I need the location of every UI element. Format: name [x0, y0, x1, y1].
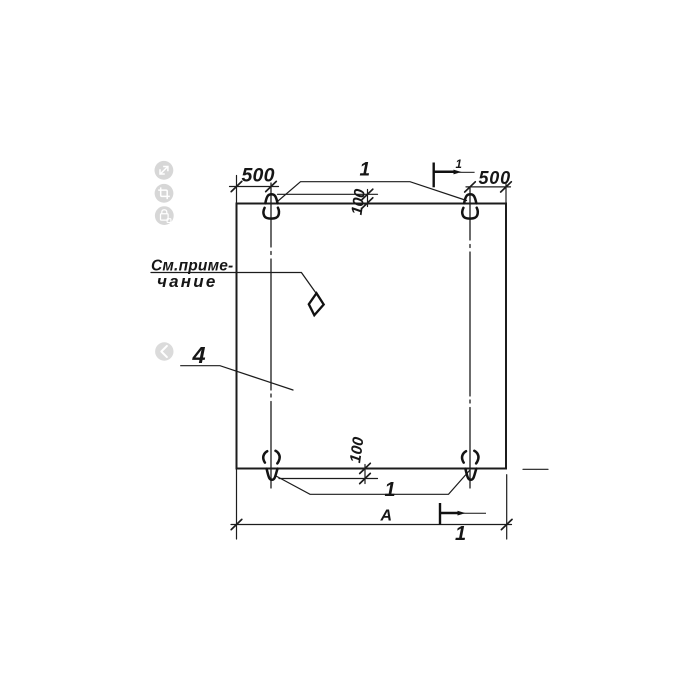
svg-text:А: А [380, 508, 393, 525]
svg-text:чание: чание [157, 272, 217, 291]
svg-text:1: 1 [455, 523, 466, 545]
svg-text:500: 500 [479, 168, 511, 188]
svg-text:4: 4 [192, 342, 206, 368]
svg-text:1: 1 [456, 159, 462, 171]
svg-text:1: 1 [360, 160, 371, 181]
svg-text:100: 100 [349, 188, 369, 216]
svg-text:1: 1 [385, 479, 396, 501]
svg-text:500: 500 [242, 165, 275, 187]
svg-text:100: 100 [347, 436, 367, 464]
